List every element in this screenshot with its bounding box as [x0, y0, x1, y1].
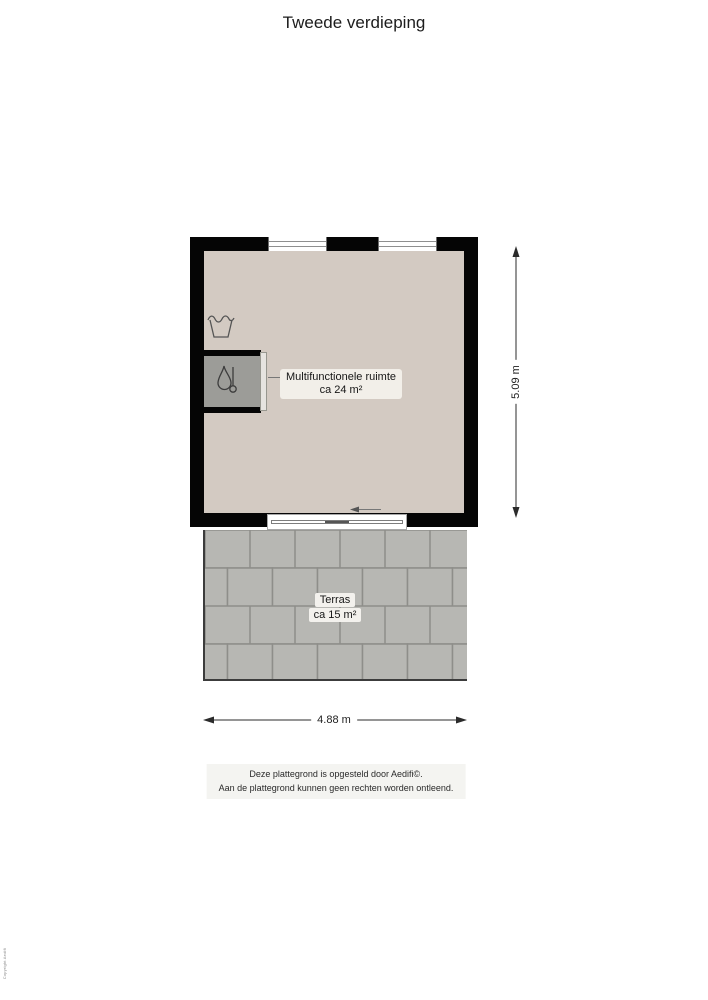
terrace-label-name: Terras	[315, 593, 356, 607]
footer-note: Deze plattegrond is opgesteld door Aedif…	[207, 764, 466, 799]
closet-door	[260, 352, 267, 411]
footer-line-1: Deze plattegrond is opgesteld door Aedif…	[219, 768, 454, 782]
sliding-door-arrow-icon	[350, 505, 382, 514]
page-title: Tweede verdieping	[0, 13, 708, 33]
closet-wall-bottom	[204, 407, 261, 413]
window-left	[268, 237, 327, 251]
window-glass-line	[269, 241, 326, 247]
footer-line-2: Aan de plattegrond kunnen geen rechten w…	[219, 782, 454, 796]
window-right	[378, 237, 437, 251]
window-glass-line	[379, 241, 436, 247]
laundry-tub-icon	[206, 311, 236, 341]
sliding-door	[267, 514, 407, 530]
room-label: Multifunctionele ruimte ca 24 m²	[280, 369, 402, 399]
room-label-area: ca 24 m²	[282, 384, 400, 397]
horizontal-dimension-label: 4.88 m	[311, 714, 357, 726]
closet	[204, 350, 268, 413]
boiler-icon	[216, 363, 242, 397]
terrace-label: Terras ca 15 m²	[203, 592, 467, 622]
sliding-door-handle	[325, 521, 349, 523]
terrace-label-area: ca 15 m²	[309, 608, 362, 622]
watermark: Copyright Aedifi	[2, 948, 7, 979]
room-label-name: Multifunctionele ruimte	[282, 371, 400, 384]
closet-wall-top	[204, 350, 261, 356]
vertical-dimension-label: 5.09 m	[510, 360, 522, 404]
